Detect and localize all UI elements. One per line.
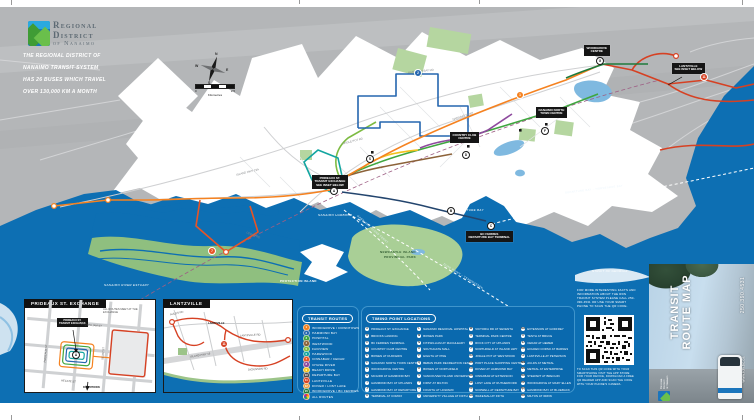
timing-row: JHAMMOND BAY AT DEPARTURE BAY [365, 386, 417, 393]
timing-row: QQHAMMOND BAY AT BLUEBACK [521, 386, 571, 393]
cover-title: TRANSIT ROUTE MAP [669, 267, 695, 357]
brand-regional: Regional [53, 20, 97, 30]
timing-row: LLLANTZVILLE AT PETERSON [521, 353, 571, 360]
timing-row: KTERMINAL AT COMOX [365, 393, 417, 400]
callout-woodgrove: WOODGROVE CENTRE [584, 45, 610, 56]
timing-row: EBOWEN AT DUFFERIN [365, 353, 417, 360]
timing-row: XTERMINAL PARK CENTRE [469, 333, 521, 340]
crop-mark [479, 0, 480, 4]
timing-row: CBC FERRIES TERMINAL [365, 339, 417, 346]
timing-column-3: WVICTORIA RD AT SEVENTH XTERMINAL PARK C… [469, 326, 521, 400]
scale-bar: 02.5 Kilometres [195, 84, 235, 97]
inset-lantzville-badge: 11 [220, 340, 228, 348]
timing-row: EELOST LAKE AT RUTHERFORD [469, 380, 521, 387]
legend-transit-routes: TRANSIT ROUTES 1WOODGROVE / DOWNTOWN 2HA… [297, 306, 359, 393]
crop-mark [11, 0, 12, 5]
cover-promo-text: For more interesting facts and informati… [577, 288, 636, 308]
timing-row: IITENTH AT BRUCE [521, 333, 571, 340]
qr-pattern [586, 317, 632, 363]
timing-row: RBOWEN AT NORTHFIELD [417, 366, 469, 373]
inset-downtown-arrow-label: DOWNTOWN [83, 386, 100, 389]
timing-row: YROCK CITY AT UPLANDS [469, 339, 521, 346]
crop-mark [742, 415, 743, 420]
timing-row: HMCGIRR AT HAMMOND BAY [365, 373, 417, 380]
route-icon-all-routes [303, 393, 310, 400]
timing-column-2: LNANAIMO REGIONAL HOSPITAL MBOWEN PARK N… [417, 326, 469, 400]
callout-country-club: COUNTRY CLUB CENTRE [450, 132, 479, 143]
scale-unit: Kilometres [195, 93, 235, 97]
inset-prideaux-marker-a: A [72, 351, 80, 359]
cover-rdn-logo: Regional District of Nanaimo [657, 355, 671, 401]
timing-row: BBPORT PLACE SHOPPING CENTRE [469, 359, 521, 366]
scale-zero: 0 [195, 89, 197, 93]
timing-column-4: HHEXTENSION AT GODFREY IITENTH AT BRUCE … [521, 326, 571, 400]
callout-north-town-centre: NANAIMO NORTH TOWN CENTRE [536, 107, 567, 118]
route-badge-2: 2 [414, 69, 422, 77]
inset-lantzville-village: LANTZVILLE [208, 322, 224, 325]
timing-row: OSOUTHGATE MALL [417, 346, 469, 353]
map-marker-c: C [487, 222, 495, 230]
map-marker-s: S [366, 155, 374, 163]
route-row: ALL ROUTES [298, 394, 358, 399]
timing-row: APRIDEAUX ST. EXCHANGE [365, 326, 417, 333]
timing-row: UFOURTH AT HOWARD [417, 386, 469, 393]
island-label-newcastle-2: PROVINCIAL PARK [384, 255, 416, 259]
timing-row: NNMETRAL AT ENTERPRISE [521, 366, 571, 373]
map-marker-b: B [447, 207, 455, 215]
timing-row: TFIRST AT MILTON [417, 380, 469, 387]
timing-row: LNANAIMO REGIONAL HOSPITAL [417, 326, 469, 333]
timing-row: KKHOLDEN CORSO AT BARNES [521, 346, 571, 353]
inset-prideaux-note: ALL ROUTES MEET AT THE EXCHANGE [103, 308, 151, 315]
map-marker-a: A [330, 187, 338, 195]
timing-row: AAJINGLE POT AT WESTWOOD [469, 353, 521, 360]
timing-column-1: APRIDEAUX ST. EXCHANGE BBROOKS LANDING C… [365, 326, 417, 400]
timing-row: RRMILTON AT IRWIN [521, 393, 571, 400]
route-badge-7: 7 [208, 247, 216, 255]
compass-star [199, 55, 227, 83]
compass-rose: N E S W [199, 55, 227, 83]
water-label-departure-bay: DEPARTURE BAY [455, 208, 484, 212]
timing-row: SVANCOUVER ISLAND UNIVERSITY [417, 373, 469, 380]
timing-row: VUNIVERSITY VILLAGE AT FIFTH [417, 393, 469, 400]
cover-website: www.rdn.bc.ca [741, 342, 748, 398]
timing-row: BBROOKS LANDING [365, 333, 417, 340]
rdn-logo-mini [658, 391, 670, 401]
crop-mark [299, 416, 300, 420]
timing-row: PPWOODGROVE AT MARY ELLEN [521, 380, 571, 387]
map-marker-f: F [541, 127, 549, 135]
intro-tagline: THE REGIONAL DISTRICT OF NANAIMO TRANSIT… [23, 50, 133, 98]
crop-mark [479, 416, 480, 420]
water-label-strait: STRAIT OF GEORGIA [592, 269, 628, 273]
inset-lantzville: LANTZVILLE LANTZVILLE 11 LANTZVILLE RD A… [163, 299, 293, 393]
route-badge-11: 11 [700, 73, 708, 81]
timing-row: NFITZWILLIAM AT MACHLEARY [417, 339, 469, 346]
timing-row: QBEBAN PARK RECREATION CENTRE [417, 359, 469, 366]
compass-e: E [226, 68, 228, 72]
timing-row: GGWAKESIAH AT FIFTH [469, 393, 521, 400]
brand-of-nanaimo: of Nanaimo [53, 41, 95, 47]
brand-district: District [53, 30, 94, 40]
timing-row: FFNORWELL AT DEPARTURE BAY [469, 386, 521, 393]
island-label-newcastle-1: NEWCASTLE ISLAND [380, 250, 416, 254]
transit-map-page: { "brand": { "line1": "Regional", "line2… [0, 0, 754, 420]
timing-row: PEIGHTH AT PINE [417, 353, 469, 360]
cover-qr-instructions: To scan this QR code with your smartphon… [577, 368, 636, 386]
map-marker-d: D [462, 151, 470, 159]
inset-prideaux-exchange: PRIDEAUX ST. EXCHANGE A PRIDEAUX ST. TRA… [24, 299, 156, 393]
timing-row: GWOODGROVE CENTRE [365, 366, 417, 373]
water-label-estuary: NANAIMO RIVER ESTUARY [104, 283, 149, 287]
timing-row: JJCEDAR AT HEMER [521, 339, 571, 346]
timing-row: OOSTEWART AT BRECHIN [521, 373, 571, 380]
timing-row: DDCINNABAR AT EXTENSION [469, 373, 521, 380]
timing-row: DCOUNTRY CLUB CENTRE [365, 346, 417, 353]
compass-n: N [215, 52, 218, 56]
crop-mark [742, 0, 743, 5]
timing-row: MMAULDS AT METRAL [521, 359, 571, 366]
rdn-logo [28, 21, 50, 46]
legend-timing-header: TIMING POINT LOCATIONS [366, 314, 436, 323]
timing-row: MBOWEN PARK [417, 333, 469, 340]
callout-prideaux-exchange: PRIDEAUX ST. TRANSIT EXCHANGE SEE INSET … [312, 175, 348, 189]
cover-phone-number: 250.390.4531 [740, 263, 748, 327]
crop-mark [11, 415, 12, 420]
compass-w: W [195, 64, 198, 68]
timing-row: CCDOVER AT HAMMOND BAY [469, 366, 521, 373]
inset-lantzville-map [164, 300, 292, 392]
timing-row: FNANAIMO NORTH TOWN CENTRE [365, 359, 417, 366]
legend-timing-points: TIMING POINT LOCATIONS APRIDEAUX ST. EXC… [361, 306, 575, 393]
qr-code [584, 315, 634, 365]
island-label-protection: PROTECTION ISLAND [280, 279, 317, 283]
timing-row: ZNORTHFIELD AT ISLAND HWY [469, 346, 521, 353]
timing-row: HHEXTENSION AT GODFREY [521, 326, 571, 333]
map-marker-g: G [596, 57, 604, 65]
scale-max: 2.5 [231, 89, 235, 93]
timing-row: WVICTORIA RD AT SEVENTH [469, 326, 521, 333]
legend-routes-header: TRANSIT ROUTES [302, 314, 353, 323]
bus-photo [718, 355, 742, 399]
callout-lantzville: LANTZVILLE SEE INSET BELOW [672, 63, 705, 74]
callout-bc-ferries: BC FERRIES DEPARTURE BAY TERMINAL [466, 231, 513, 242]
crop-mark [299, 0, 300, 4]
timing-row: IHAMMOND BAY AT UPLANDS [365, 380, 417, 387]
water-label-harbour: NANAIMO HARBOUR [318, 213, 352, 217]
route-badge-1: 1 [516, 91, 524, 99]
